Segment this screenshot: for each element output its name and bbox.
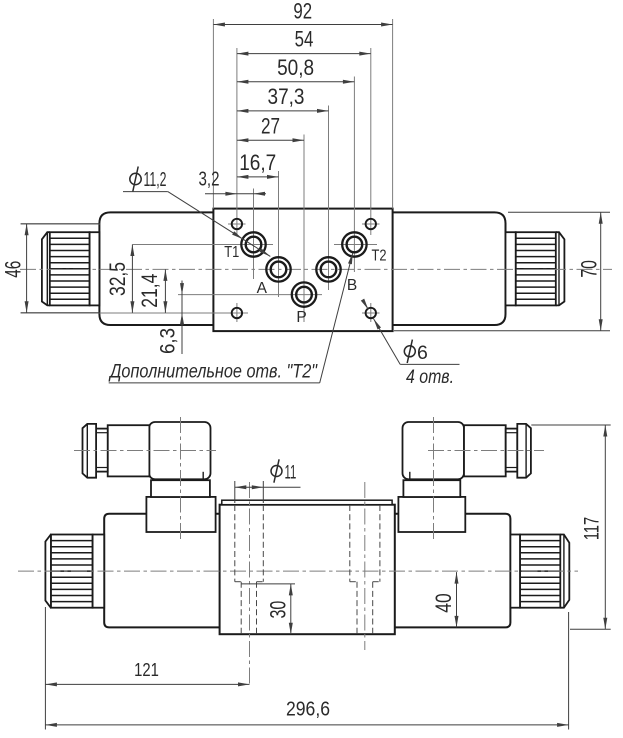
- svg-text:121: 121: [134, 660, 159, 680]
- svg-text:37,3: 37,3: [268, 84, 305, 109]
- svg-text:46: 46: [0, 261, 25, 278]
- svg-text:70: 70: [577, 260, 602, 277]
- svg-text:92: 92: [293, 0, 312, 23]
- svg-text:27: 27: [261, 113, 280, 138]
- svg-text:30: 30: [266, 601, 291, 619]
- svg-text:B: B: [347, 277, 357, 294]
- svg-text:54: 54: [295, 26, 314, 51]
- svg-text:A: A: [257, 280, 268, 297]
- svg-text:11: 11: [285, 463, 297, 484]
- svg-text:21,4: 21,4: [137, 274, 162, 308]
- svg-text:T1: T1: [224, 244, 239, 261]
- svg-text:296,6: 296,6: [286, 698, 330, 721]
- svg-text:3,2: 3,2: [199, 168, 220, 190]
- svg-text:40: 40: [431, 593, 456, 613]
- svg-text:P: P: [296, 309, 306, 326]
- svg-text:4 отв.: 4 отв.: [406, 366, 454, 388]
- svg-text:6,3: 6,3: [157, 328, 180, 354]
- svg-text:117: 117: [580, 517, 604, 540]
- svg-text:Дополнительное отв. "Т2": Дополнительное отв. "Т2": [108, 362, 318, 383]
- svg-text:6: 6: [417, 342, 428, 364]
- svg-text:32,5: 32,5: [105, 262, 130, 296]
- svg-text:11,2: 11,2: [144, 168, 167, 191]
- svg-text:50,8: 50,8: [277, 55, 314, 80]
- svg-text:16,7: 16,7: [239, 150, 276, 175]
- svg-text:T2: T2: [372, 248, 387, 265]
